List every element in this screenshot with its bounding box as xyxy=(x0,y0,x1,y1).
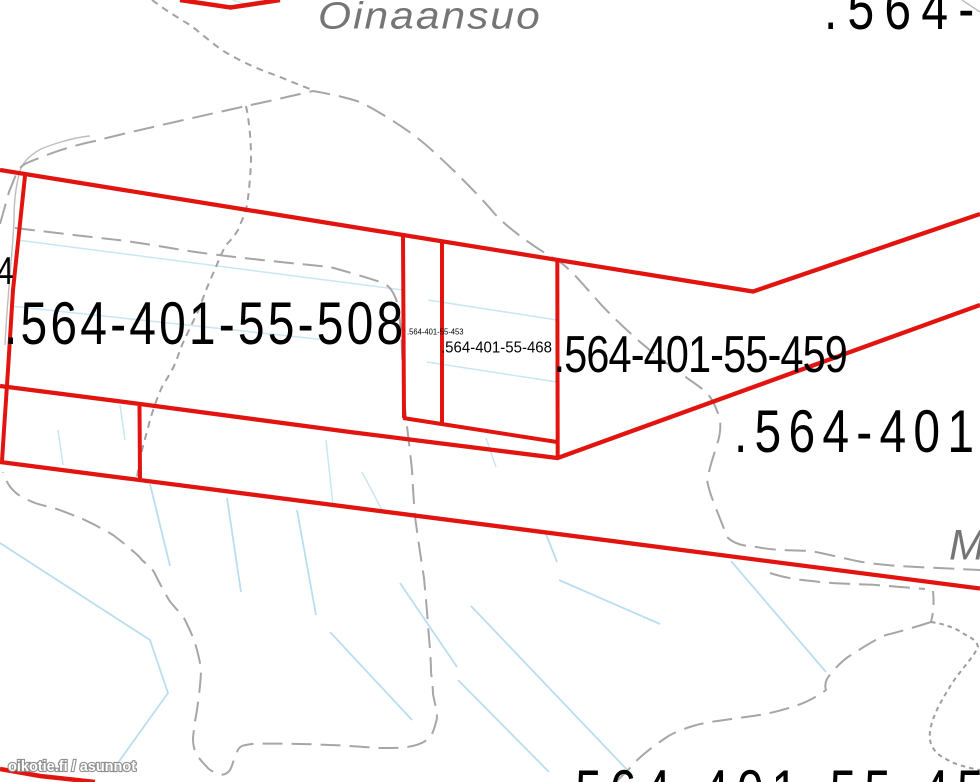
svg-text:.564-401-55-453: .564-401-55-453 xyxy=(407,327,464,337)
svg-text:Mä: Mä xyxy=(949,522,980,570)
svg-text:.564-401-55-508: .564-401-55-508 xyxy=(4,290,403,357)
svg-text:4: 4 xyxy=(0,250,14,293)
svg-text:oikotie.fi / asunnot: oikotie.fi / asunnot xyxy=(8,759,136,775)
svg-text:.564-401-55-468: .564-401-55-468 xyxy=(441,340,552,357)
svg-text:.564-401-55-459: .564-401-55-459 xyxy=(554,325,848,384)
